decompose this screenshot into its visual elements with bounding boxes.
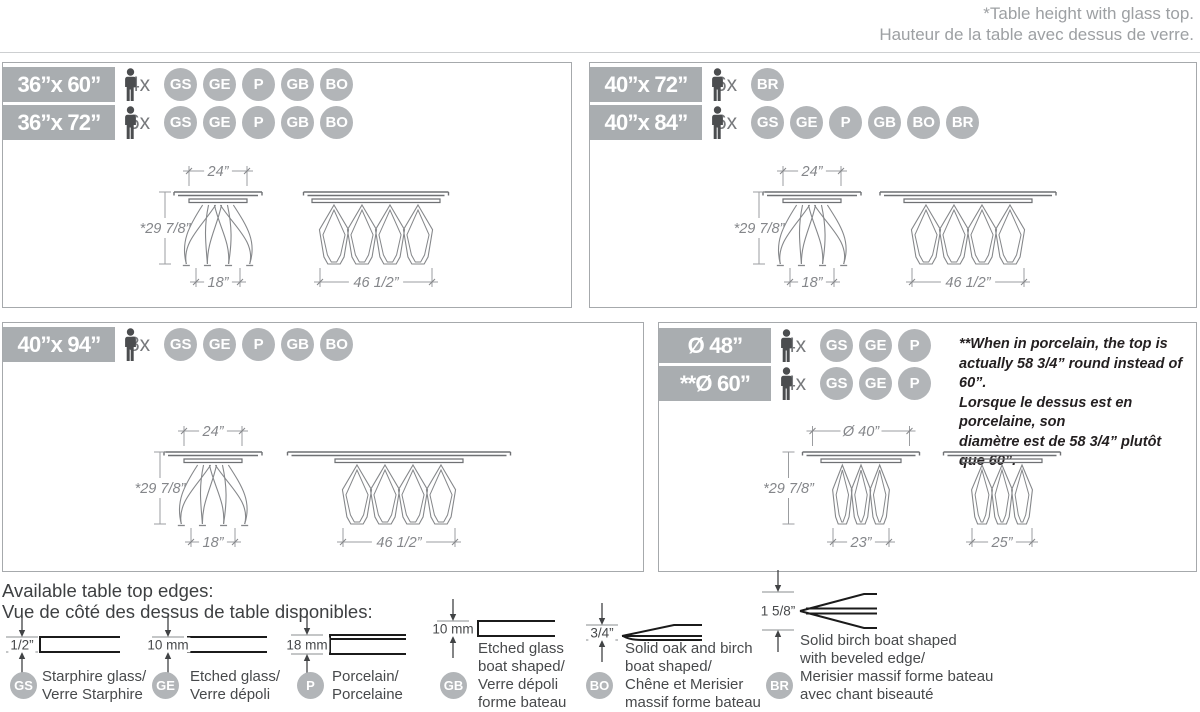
header-divider <box>0 52 1200 53</box>
svg-text:24”: 24” <box>207 164 230 180</box>
finish-badge-ge: GE <box>790 106 823 139</box>
svg-text:46 1/2”: 46 1/2” <box>353 275 399 291</box>
svg-text:*29 7/8”: *29 7/8” <box>140 221 192 237</box>
edge-material-label: Solid oak and birchboat shaped/Chêne et … <box>625 640 761 712</box>
finish-badge-p: P <box>242 68 275 101</box>
person-icon <box>710 106 725 140</box>
svg-text:46 1/2”: 46 1/2” <box>376 535 422 551</box>
size-label: 40”x 72” <box>590 67 702 102</box>
edge-code-badge-p: P <box>297 672 324 699</box>
seating-finishes-row: 6xGSGEPGBBOBR <box>710 105 979 140</box>
finish-badge-bo: BO <box>320 106 353 139</box>
person-icon <box>123 106 138 140</box>
finish-badge-bo: BO <box>320 68 353 101</box>
svg-text:24”: 24” <box>202 424 225 440</box>
edge-thickness-dim: 18 mm <box>284 637 329 652</box>
edge-thickness-dim: 3/4” <box>588 625 615 640</box>
size-label: 36”x 72” <box>3 105 115 140</box>
finish-badge-p: P <box>242 328 275 361</box>
size-label: **Ø 60” <box>659 366 771 401</box>
person-icon <box>779 367 794 401</box>
finish-badge-p: P <box>829 106 862 139</box>
seating-finishes-row: 4xGSGEP <box>779 366 931 401</box>
header-note-fr: Hauteur de la table avec dessus de verre… <box>879 24 1194 45</box>
finish-badge-p: P <box>898 329 931 362</box>
seating-finishes-row: 8xGSGEPGBBO <box>123 327 353 362</box>
finish-badge-gb: GB <box>281 328 314 361</box>
svg-text:Ø 40”: Ø 40” <box>842 424 880 440</box>
edge-thickness-dim: 1 5/8” <box>759 604 798 619</box>
header-note-en: *Table height with glass top. <box>879 3 1194 24</box>
svg-text:*29 7/8”: *29 7/8” <box>135 481 187 497</box>
svg-text:18”: 18” <box>802 275 824 291</box>
seating-finishes-row: 4xGSGEPGBBO <box>123 67 353 102</box>
finish-badge-gs: GS <box>164 68 197 101</box>
finish-badge-gs: GS <box>164 106 197 139</box>
svg-text:*29 7/8”: *29 7/8” <box>763 481 815 497</box>
size-label: 36”x 60” <box>3 67 115 102</box>
spec-sheet-page: { "colors": {"bar_gray":"#a9adb0","badge… <box>0 0 1200 703</box>
finish-badge-gb: GB <box>281 106 314 139</box>
edge-material-label: Starphire glass/Verre Starphire <box>42 668 146 704</box>
edge-material-label: Porcelain/Porcelaine <box>332 668 403 704</box>
edge-thickness-dim: 10 mm <box>145 637 190 652</box>
spec-panel-1: 36”x 60” 4xGSGEPGBBO36”x 72” 6xGSGEPGBBO… <box>2 62 572 308</box>
edge-code-badge-gs: GS <box>10 672 37 699</box>
edge-material-label: Etched glassboat shaped/Verre dépoliform… <box>478 640 566 712</box>
finish-badge-ge: GE <box>203 68 236 101</box>
svg-text:46 1/2”: 46 1/2” <box>945 275 991 291</box>
person-icon <box>123 328 138 362</box>
finish-badge-br: BR <box>946 106 979 139</box>
person-icon <box>710 68 725 102</box>
edge-code-badge-br: BR <box>766 672 793 699</box>
finish-badge-ge: GE <box>859 329 892 362</box>
spec-panel-3: 40”x 94” 8xGSGEPGBBO24”*29 7/8”18”46 1/2… <box>2 322 644 572</box>
svg-text:*29 7/8”: *29 7/8” <box>734 221 786 237</box>
finish-badge-bo: BO <box>907 106 940 139</box>
porcelain-note: **When in porcelain, the top isactually … <box>959 335 1187 472</box>
finish-badge-gs: GS <box>820 329 853 362</box>
finish-badge-ge: GE <box>859 367 892 400</box>
finish-badge-bo: BO <box>320 328 353 361</box>
finish-badge-p: P <box>898 367 931 400</box>
finish-badge-ge: GE <box>203 106 236 139</box>
svg-text:18”: 18” <box>203 535 225 551</box>
finish-badge-p: P <box>242 106 275 139</box>
finish-badge-br: BR <box>751 68 784 101</box>
edge-material-label: Etched glass/Verre dépoli <box>190 668 280 704</box>
header-note: *Table height with glass top. Hauteur de… <box>879 3 1194 45</box>
spec-panel-4: Ø 48” 4xGSGEP**Ø 60” 4xGSGEP**When in po… <box>658 322 1197 572</box>
person-icon <box>779 329 794 363</box>
seating-finishes-row: 6xGSGEPGBBO <box>123 105 353 140</box>
edge-thickness-dim: 10 mm <box>430 621 475 636</box>
edge-thickness-dim: 1/2” <box>8 637 35 652</box>
finish-badge-gs: GS <box>820 367 853 400</box>
finish-badge-ge: GE <box>203 328 236 361</box>
svg-text:25”: 25” <box>991 535 1014 551</box>
edge-code-badge-bo: BO <box>586 672 613 699</box>
edge-code-badge-gb: GB <box>440 672 467 699</box>
size-label: Ø 48” <box>659 328 771 363</box>
finish-badge-gb: GB <box>868 106 901 139</box>
seating-finishes-row: 6xBR <box>710 67 784 102</box>
svg-text:23”: 23” <box>850 535 873 551</box>
finish-badge-gs: GS <box>164 328 197 361</box>
edge-code-badge-ge: GE <box>152 672 179 699</box>
edge-material-label: Solid birch boat shapedwith beveled edge… <box>800 632 993 704</box>
svg-text:24”: 24” <box>801 164 824 180</box>
spec-panel-2: 40”x 72” 6xBR40”x 84” 6xGSGEPGBBOBR24”*2… <box>589 62 1197 308</box>
person-icon <box>123 68 138 102</box>
svg-text:18”: 18” <box>208 275 230 291</box>
finish-badge-gb: GB <box>281 68 314 101</box>
size-label: 40”x 94” <box>3 327 115 362</box>
size-label: 40”x 84” <box>590 105 702 140</box>
finish-badge-gs: GS <box>751 106 784 139</box>
seating-finishes-row: 4xGSGEP <box>779 328 931 363</box>
